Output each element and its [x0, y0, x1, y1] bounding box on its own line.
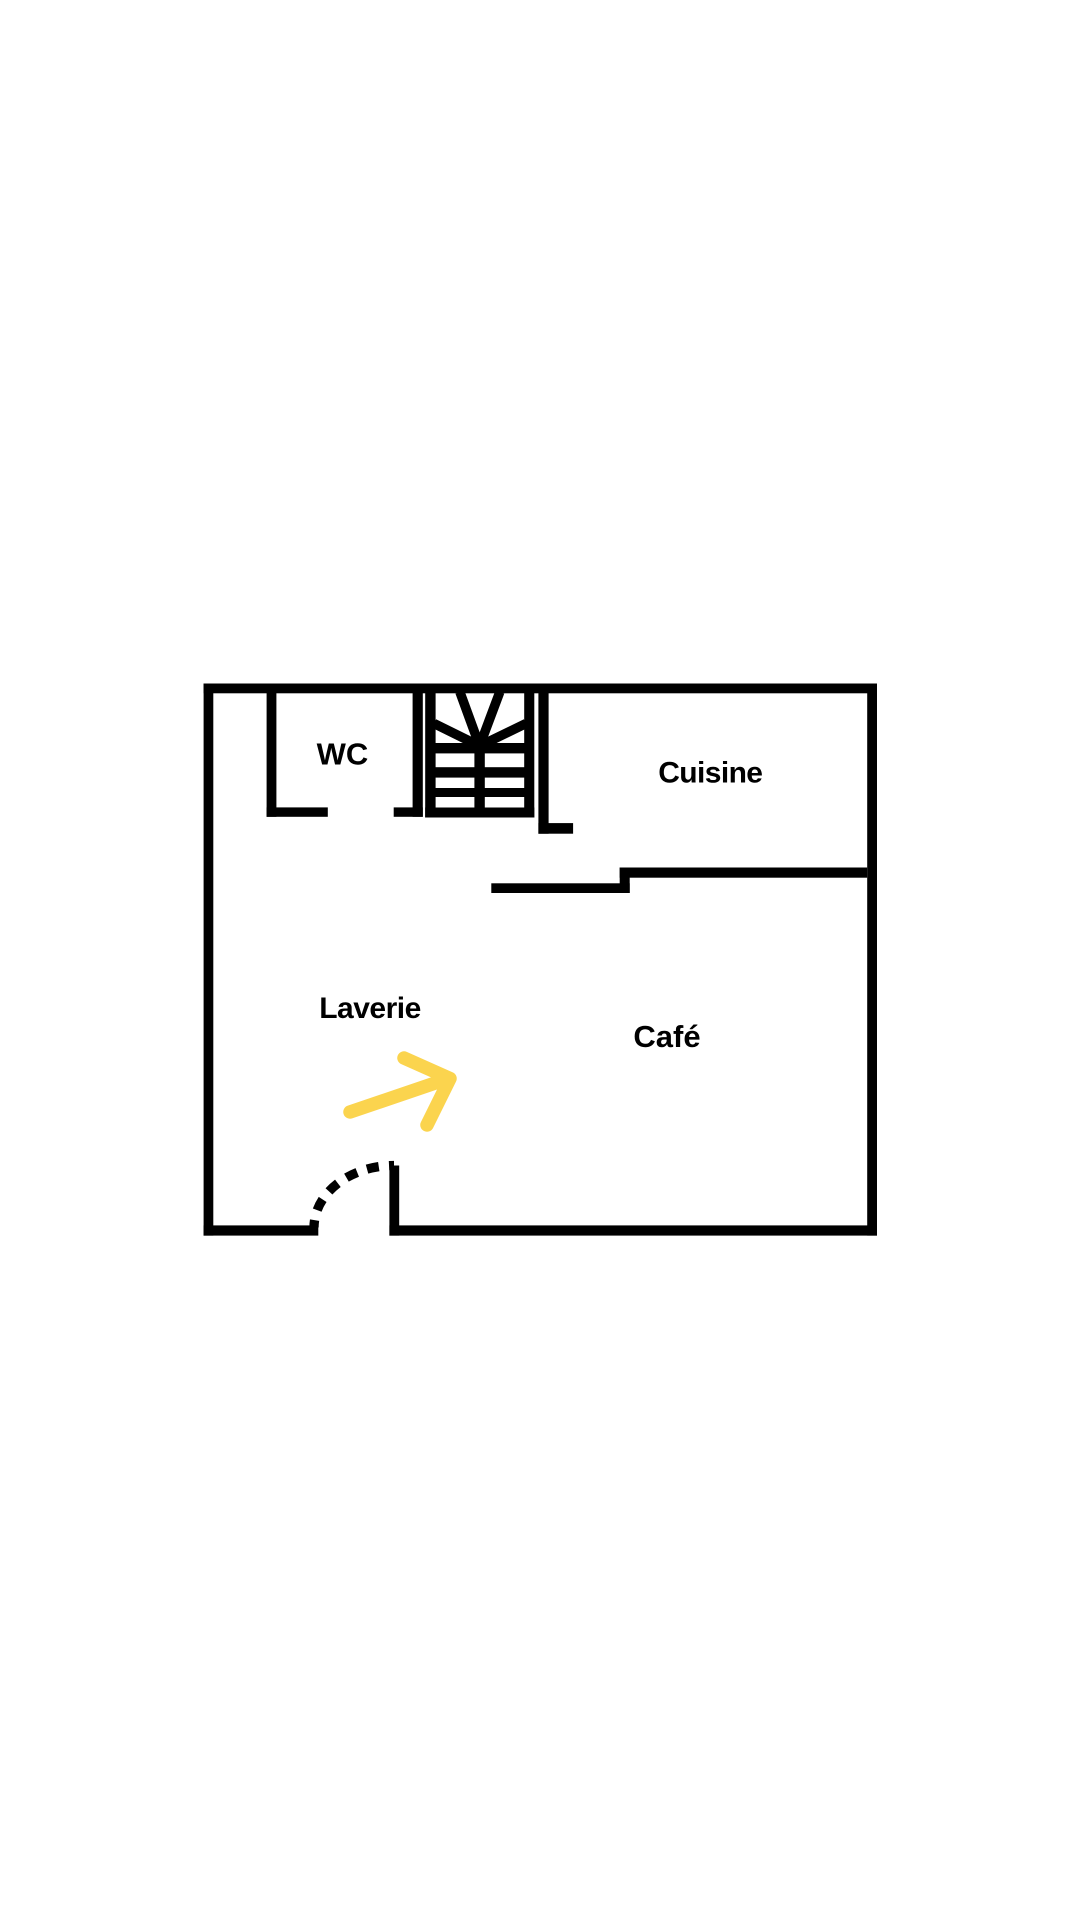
svg-text:Cuisine: Cuisine [658, 757, 762, 790]
svg-text:Laverie: Laverie [319, 992, 421, 1025]
svg-text:Café: Café [633, 1019, 700, 1054]
svg-text:WC: WC [317, 736, 369, 771]
